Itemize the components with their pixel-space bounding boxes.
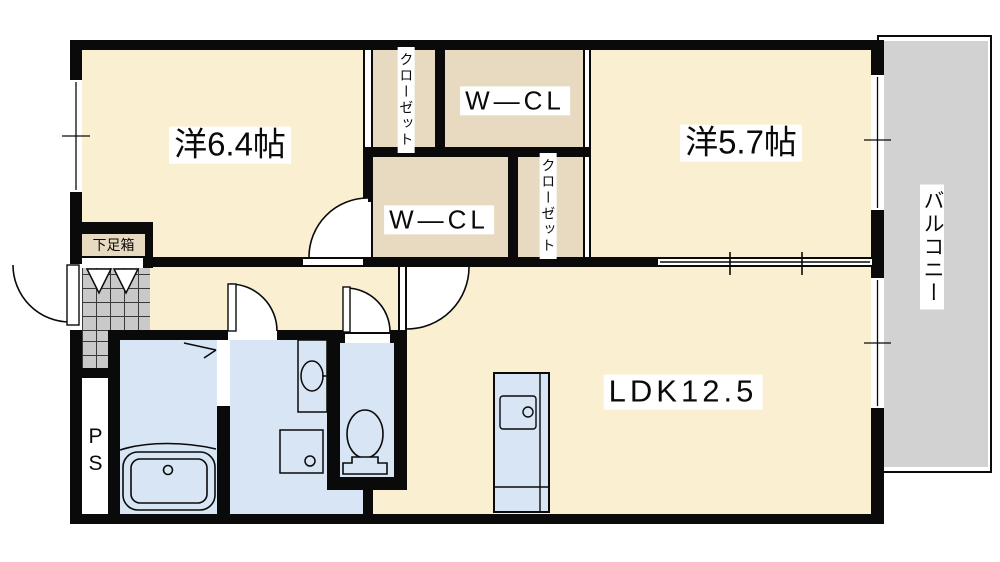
sliding-door-marks bbox=[660, 252, 870, 275]
closet1-label: クローゼット bbox=[398, 47, 415, 153]
pipe-space-label-text: PS bbox=[84, 425, 106, 479]
wcl-bottom-label-text: W—CL bbox=[389, 206, 489, 233]
entrance-door-arc bbox=[13, 265, 70, 322]
ldk-door-swing bbox=[407, 267, 469, 329]
toilet bbox=[343, 410, 387, 474]
toilet-door-leaf bbox=[343, 287, 350, 332]
closet1-label-text: クローゼット bbox=[399, 52, 414, 148]
bedroom1-door-swing bbox=[309, 198, 368, 257]
bathtub bbox=[120, 444, 216, 511]
bathroom-folding-door bbox=[184, 343, 216, 358]
wcl-top-label-text: W—CL bbox=[465, 87, 565, 114]
fixtures-and-doors-layer bbox=[0, 0, 1000, 562]
entrance-door-leaf bbox=[67, 265, 79, 325]
ldk-label-text: LDK12.5 bbox=[609, 376, 758, 409]
kitchen-sink bbox=[494, 373, 549, 512]
washing-machine bbox=[280, 430, 323, 473]
wcl-bottom-label: W—CL bbox=[384, 205, 494, 234]
shoe-box: 下足箱 bbox=[80, 232, 147, 258]
ldk-label: LDK12.5 bbox=[604, 375, 763, 410]
entrance-step-marks bbox=[87, 269, 138, 293]
shoe-box-label-text: 下足箱 bbox=[93, 235, 135, 255]
bedroom1-label-text: 洋6.4帖 bbox=[174, 128, 286, 163]
bedroom2-label: 洋5.7帖 bbox=[680, 125, 802, 162]
bedroom1-label: 洋6.4帖 bbox=[169, 127, 291, 164]
bedroom2-label-text: 洋5.7帖 bbox=[685, 126, 797, 161]
wcl-top-label: W—CL bbox=[460, 86, 570, 115]
vanity-sink bbox=[298, 340, 330, 412]
washroom-door-leaf bbox=[228, 284, 236, 331]
closet2-label: クローゼット bbox=[540, 153, 557, 259]
floor-plan: 洋6.4帖 洋5.7帖 LDK12.5 W—CL W—CL クローゼット クロー… bbox=[0, 0, 1000, 562]
balcony-label-text: バルコニー bbox=[921, 190, 943, 305]
pipe-space-label: PS bbox=[83, 420, 107, 484]
balcony-label: バルコニー bbox=[920, 185, 944, 310]
closet2-label-text: クローゼット bbox=[541, 158, 556, 254]
